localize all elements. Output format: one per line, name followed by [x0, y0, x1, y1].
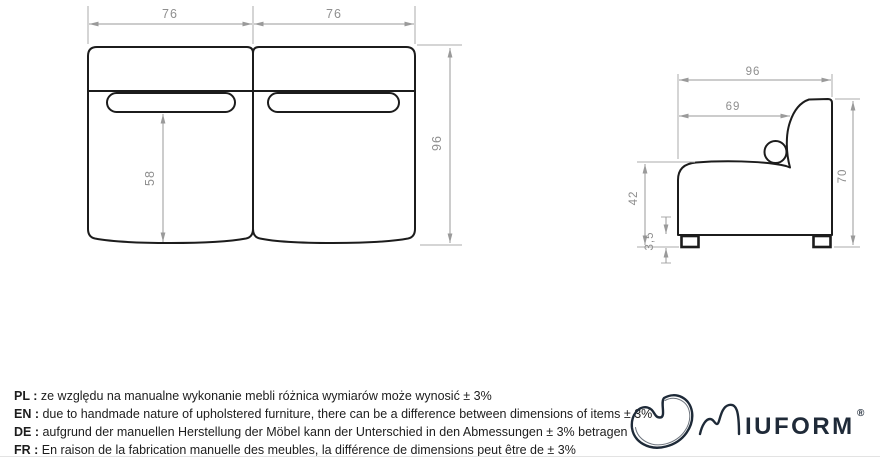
note-lang-pl: PL :: [14, 389, 37, 403]
front-module-right-outline: [253, 47, 415, 243]
miuform-logo: IUFORM ®: [626, 386, 870, 458]
dim-label-side-back-height: 70: [837, 169, 849, 184]
note-text-pl: ze względu na manualne wykonanie mebli r…: [41, 389, 492, 403]
front-module-left-outline: [88, 47, 253, 243]
dim-label-front-total-height: 96: [430, 135, 444, 151]
note-line-de: DE : aufgrund der manuellen Herstellung …: [14, 423, 652, 441]
note-line-pl: PL : ze względu na manualne wykonanie me…: [14, 387, 652, 405]
dim-label-front-slot-to-bottom: 58: [143, 170, 157, 186]
bottom-divider: [0, 456, 880, 457]
front-view: 76 76 58 96: [88, 6, 462, 245]
note-lang-de: DE :: [14, 425, 39, 439]
front-slot-right: [268, 93, 399, 112]
note-text-de: aufgrund der manuellen Herstellung der M…: [42, 425, 627, 439]
dim-label-side-total-depth: 96: [746, 66, 761, 78]
logo-wordmark: IUFORM: [745, 413, 855, 440]
note-text-fr: En raison de la fabrication manuelle des…: [42, 443, 576, 457]
logo-registered-mark: ®: [857, 408, 865, 419]
side-body-outline: [678, 99, 832, 235]
dim-label-side-seat-height: 42: [628, 191, 640, 206]
technical-drawing-sheet: 76 76 58 96: [0, 0, 880, 470]
note-text-en: due to handmade nature of upholstered fu…: [42, 407, 652, 421]
side-bolster: [765, 141, 787, 163]
logo-bean-icon: [632, 395, 692, 447]
note-line-en: EN : due to handmade nature of upholster…: [14, 405, 652, 423]
side-leg-front: [682, 236, 699, 247]
dim-label-front-width-right: 76: [326, 7, 342, 21]
tolerance-notes: PL : ze względu na manualne wykonanie me…: [14, 387, 652, 459]
dim-label-side-seat-depth: 69: [726, 101, 741, 113]
note-lang-fr: FR :: [14, 443, 38, 457]
dim-label-side-leg-height: 3,5: [644, 232, 656, 251]
front-slot-left: [107, 93, 235, 112]
logo-m-icon: [700, 405, 739, 434]
dim-label-front-width-left: 76: [162, 7, 178, 21]
side-view: 96 69 70 42 3,5: [628, 66, 860, 263]
note-lang-en: EN :: [14, 407, 39, 421]
side-leg-back: [814, 236, 831, 247]
